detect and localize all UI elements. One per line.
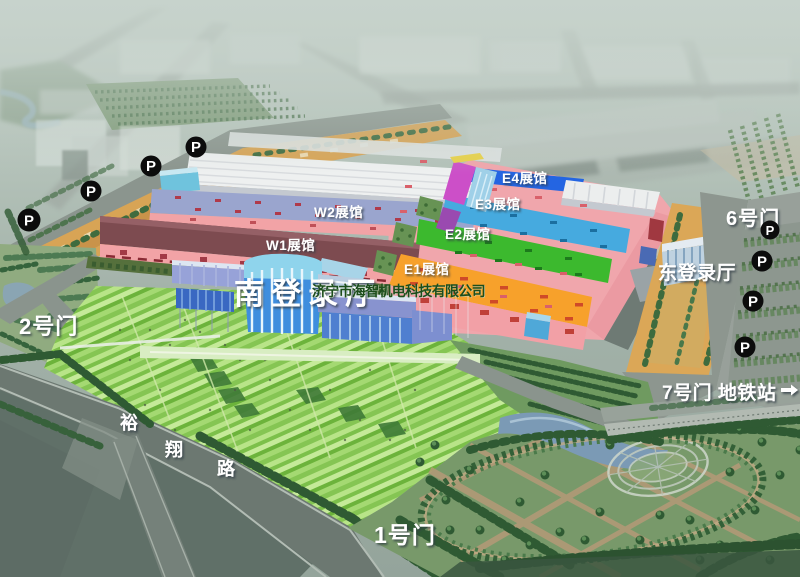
svg-text:济宁市海智机电科技有限公司: 济宁市海智机电科技有限公司: [312, 283, 485, 299]
svg-text:E3展馆: E3展馆: [475, 196, 521, 212]
svg-text:P: P: [86, 184, 96, 201]
svg-text:1号门: 1号门: [374, 522, 436, 548]
svg-text:翔: 翔: [164, 439, 183, 460]
svg-text:E1展馆: E1展馆: [404, 261, 450, 277]
svg-text:东登录厅: 东登录厅: [658, 261, 736, 284]
svg-text:裕: 裕: [120, 412, 138, 433]
svg-text:P: P: [146, 158, 156, 175]
svg-text:W2展馆: W2展馆: [314, 204, 363, 220]
svg-text:E2展馆: E2展馆: [445, 226, 491, 242]
svg-text:P: P: [24, 213, 34, 230]
svg-text:E4展馆: E4展馆: [502, 170, 548, 186]
svg-text:P: P: [757, 254, 767, 271]
svg-text:路: 路: [217, 458, 236, 479]
svg-text:P: P: [748, 294, 758, 311]
svg-text:P: P: [191, 139, 201, 156]
svg-text:7号门 地铁站: 7号门 地铁站: [662, 381, 776, 404]
svg-text:W1展馆: W1展馆: [266, 237, 315, 253]
svg-text:2号门: 2号门: [19, 314, 78, 339]
svg-text:P: P: [766, 223, 775, 238]
svg-text:P: P: [740, 340, 750, 357]
